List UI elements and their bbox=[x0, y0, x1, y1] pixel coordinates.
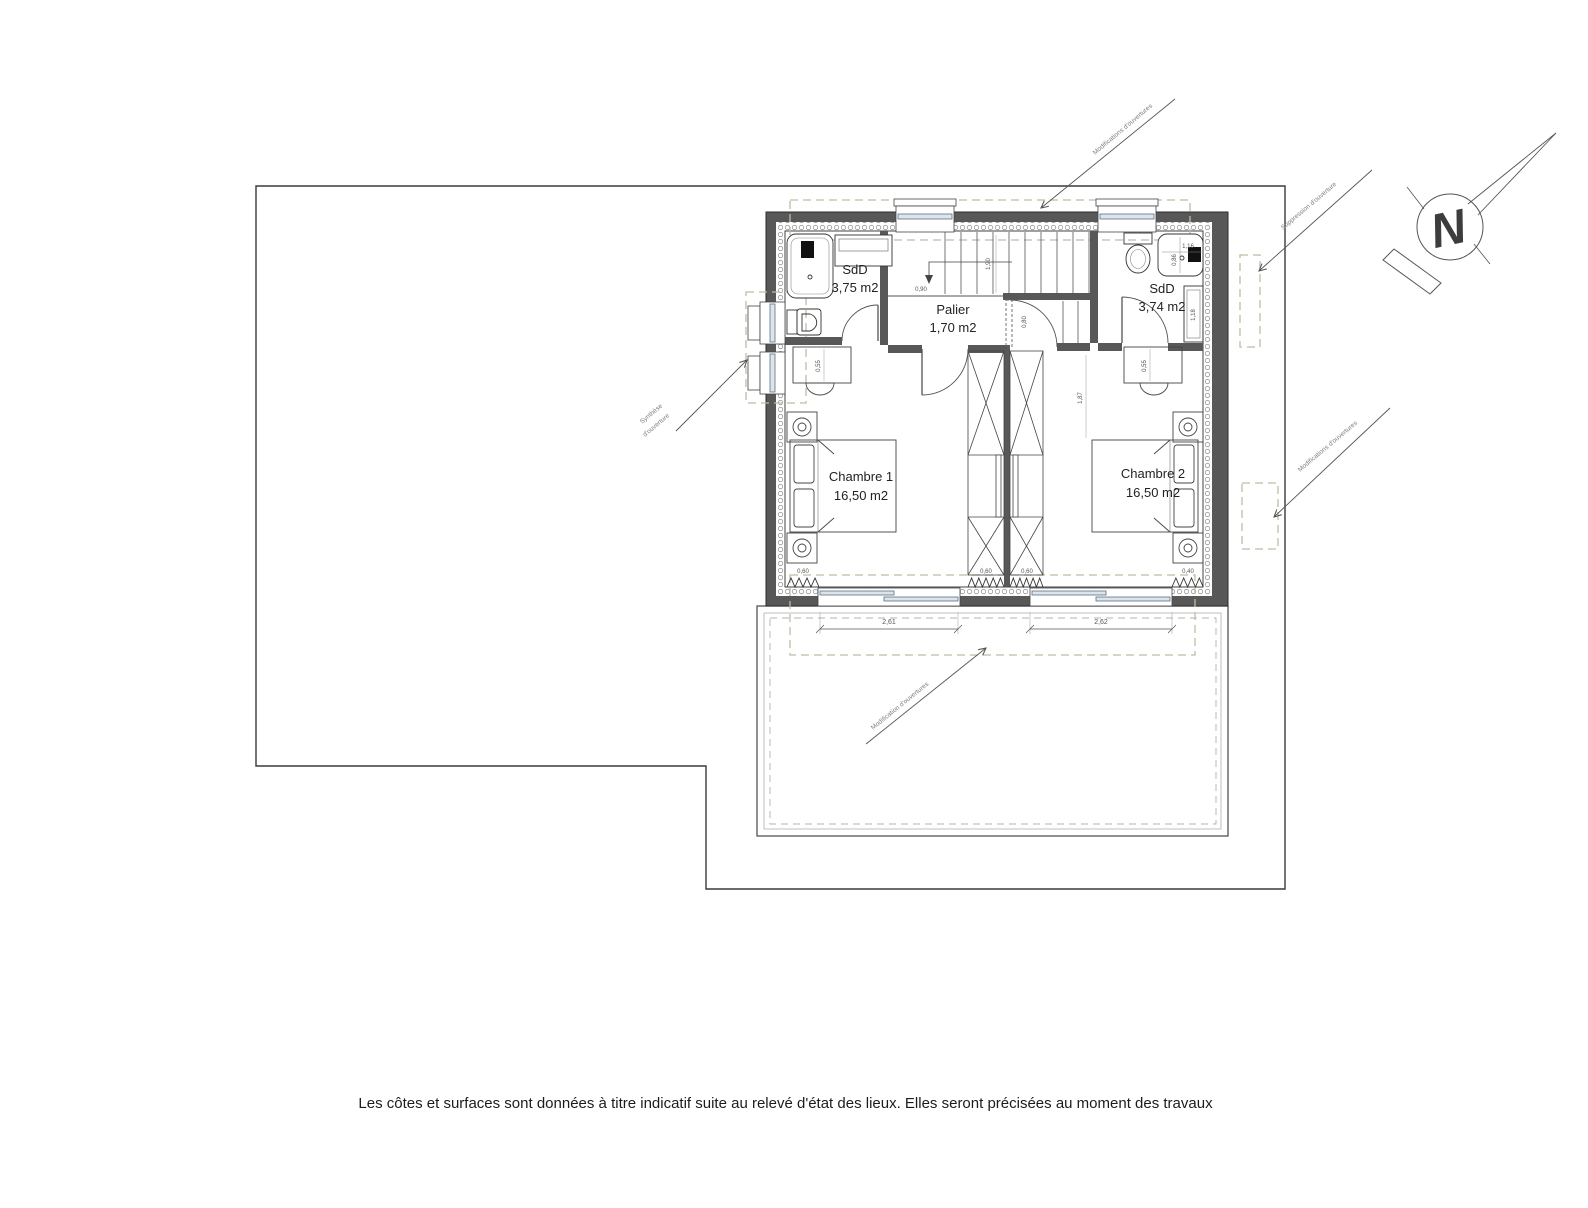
room-area-sdd-left: 3,75 m2 bbox=[832, 280, 879, 295]
room-label-chambre2: Chambre 2 bbox=[1121, 466, 1185, 481]
dim-radiator-4: 0,40 bbox=[1182, 569, 1194, 575]
floor-plan-page: 2,61 2,62 1,90 0,90 0,80 1,16 0,86 1,18 … bbox=[0, 0, 1588, 1208]
leader-top-right bbox=[1259, 170, 1372, 271]
leader-top bbox=[1041, 99, 1175, 208]
shower-right bbox=[1158, 234, 1203, 276]
dim-shower-depth: 0,86 bbox=[1172, 254, 1178, 266]
leader-left bbox=[676, 360, 747, 431]
zone-right bbox=[1242, 483, 1278, 549]
room-label-sdd-left: SdD bbox=[842, 262, 867, 277]
dim-bay-left: 2,61 bbox=[882, 619, 896, 626]
dim-desk1: 0,55 bbox=[816, 360, 822, 372]
room-area-sdd-right: 3,74 m2 bbox=[1139, 299, 1186, 314]
room-label-chambre1: Chambre 1 bbox=[829, 469, 893, 484]
dim-bed2-clearance: 1,87 bbox=[1078, 392, 1084, 404]
dim-radiator-1: 0,60 bbox=[797, 569, 809, 575]
dim-door-c2: 0,80 bbox=[1022, 316, 1028, 328]
north-label: N bbox=[1426, 200, 1472, 259]
terrace bbox=[757, 606, 1228, 836]
shower-left bbox=[787, 234, 833, 298]
bay-window-right bbox=[1030, 588, 1172, 606]
annotation-top-right: Suppression d'ouverture bbox=[1280, 181, 1339, 232]
dim-stair-run: 1,90 bbox=[986, 258, 992, 270]
room-area-chambre2: 16,50 m2 bbox=[1126, 485, 1180, 500]
room-label-palier: Palier bbox=[936, 302, 970, 317]
window-top-sdd2 bbox=[1096, 199, 1158, 232]
dim-radiator-3: 0,60 bbox=[1021, 569, 1033, 575]
dim-bay-right: 2,62 bbox=[1094, 619, 1108, 626]
dim-desk2: 0,55 bbox=[1142, 360, 1148, 372]
footer-disclaimer: Les côtes et surfaces sont données à tit… bbox=[0, 1095, 1571, 1112]
window-top-stair bbox=[894, 199, 956, 232]
dim-shower-width: 1,16 bbox=[1182, 244, 1194, 250]
leader-right bbox=[1274, 408, 1390, 517]
room-label-sdd-right: SdD bbox=[1149, 281, 1174, 296]
north-arrow: N bbox=[1383, 133, 1556, 294]
dim-radiator-2: 0,60 bbox=[980, 569, 992, 575]
north-arrow-tail bbox=[1383, 249, 1441, 294]
bay-window-left bbox=[818, 588, 960, 606]
annotation-top: Modifications d'ouvertures bbox=[1092, 102, 1155, 156]
room-area-palier: 1,70 m2 bbox=[930, 320, 977, 335]
floor-plan: 2,61 2,62 1,90 0,90 0,80 1,16 0,86 1,18 … bbox=[0, 0, 1588, 1208]
dim-towel-rail: 1,18 bbox=[1191, 309, 1197, 321]
window-left-lower bbox=[748, 352, 785, 394]
zone-suppression bbox=[1240, 255, 1260, 347]
room-area-chambre1: 16,50 m2 bbox=[834, 488, 888, 503]
window-left-upper bbox=[748, 302, 785, 344]
dim-palier-width: 0,90 bbox=[915, 287, 927, 293]
annotation-right: Modifications d'ouvertures bbox=[1297, 419, 1360, 473]
